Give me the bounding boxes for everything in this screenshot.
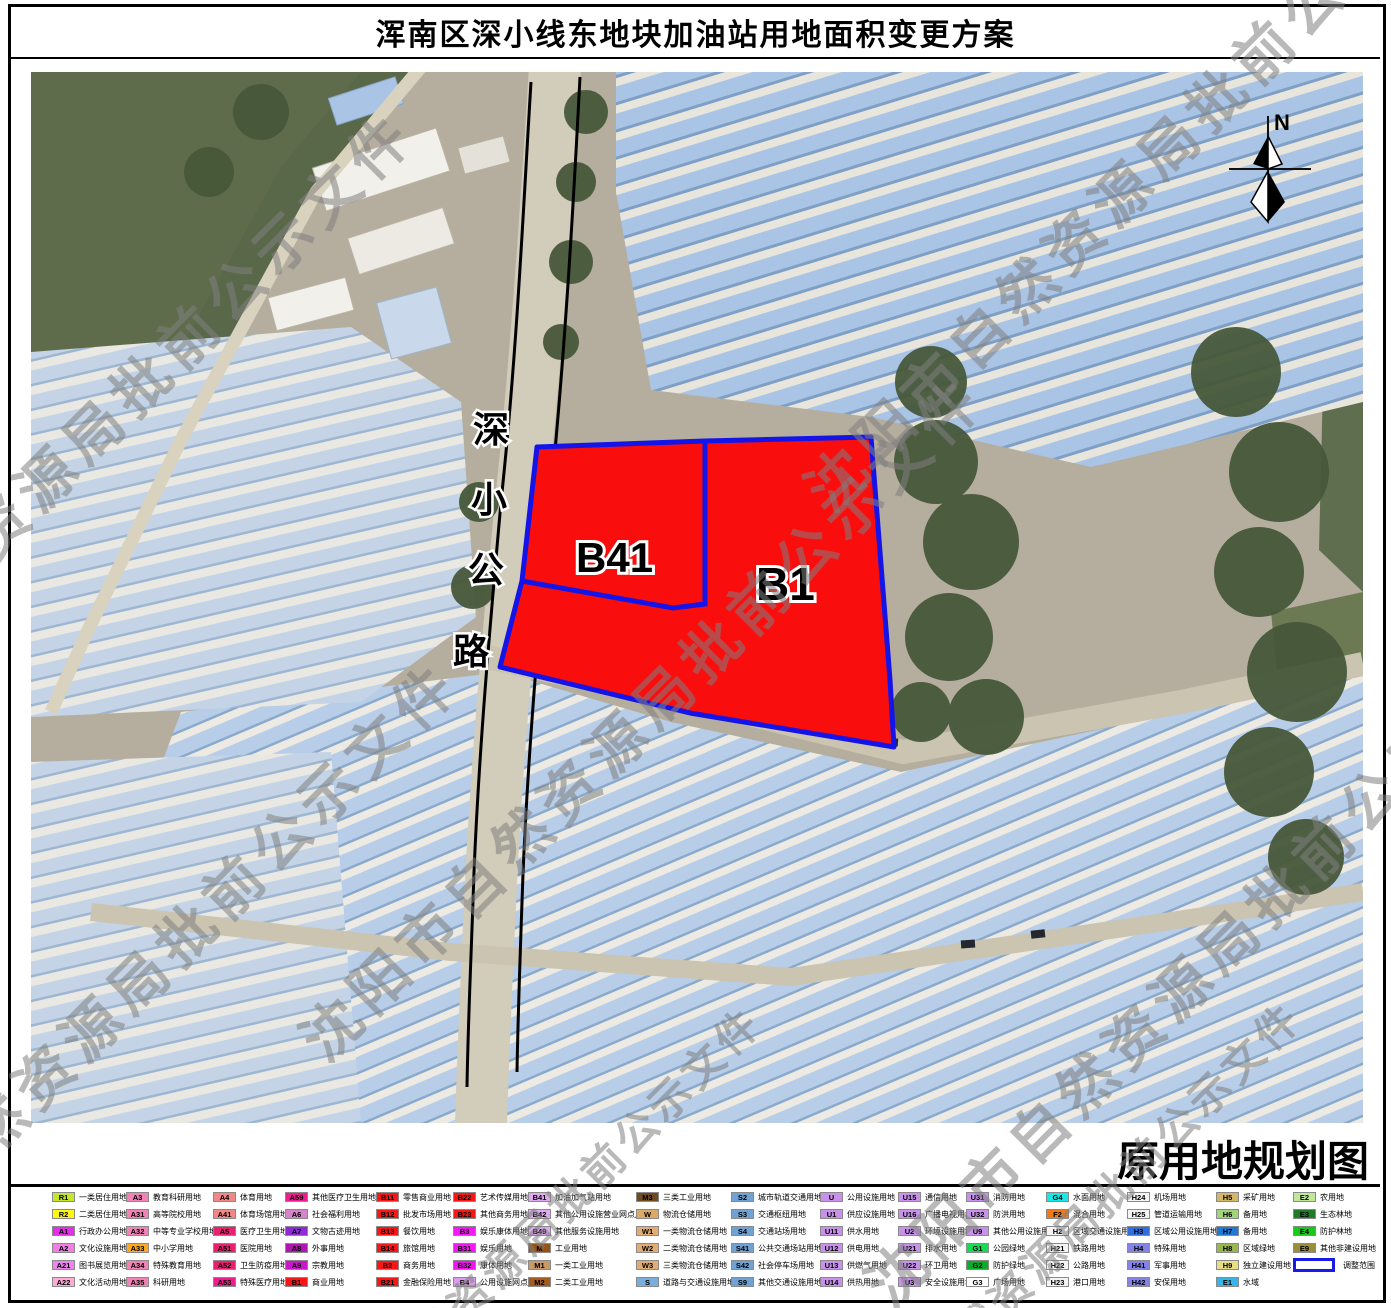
legend-chip-U21: U21 [898, 1243, 921, 1253]
legend-chip-S9: S9 [731, 1277, 754, 1287]
legend-entry-label: 三类工业用地 [663, 1193, 711, 1203]
legend-chip-H24: H24 [1127, 1192, 1150, 1202]
legend-entry-label: 交通站场用地 [758, 1227, 806, 1237]
legend-chip-B14: B14 [376, 1243, 399, 1253]
legend-chip-A3: A3 [126, 1192, 149, 1202]
legend-chip-A34: A34 [126, 1260, 149, 1270]
legend-chip-H7: H7 [1216, 1226, 1239, 1236]
legend-entry-label: 体育用地 [240, 1193, 272, 1203]
legend-chip-U: U [820, 1192, 843, 1202]
legend-entry-label: 批发市场用地 [403, 1210, 451, 1220]
road-char-3: 公 [468, 549, 504, 590]
legend-entry-label: 其他非建设用地 [1320, 1244, 1376, 1254]
legend-entry-label: 铁路用地 [1073, 1244, 1105, 1254]
legend-entry-label: 艺术传媒用地 [480, 1193, 528, 1203]
legend-entry-label: 金融保险用地 [403, 1278, 451, 1288]
legend-entry-label: 特殊教育用地 [153, 1261, 201, 1271]
legend-chip-A51: A51 [213, 1243, 236, 1253]
legend-chip-A4: A4 [213, 1192, 236, 1202]
legend-chip-B42: B42 [528, 1209, 551, 1219]
legend-chip-S4: S4 [731, 1226, 754, 1236]
legend-entry-label: 供燃气用地 [847, 1261, 887, 1271]
legend-entry-label: 防洪用地 [993, 1210, 1025, 1220]
legend-chip-A9: A9 [285, 1260, 308, 1270]
legend-chip-U16: U16 [898, 1209, 921, 1219]
legend-chip-W2: W2 [636, 1243, 659, 1253]
legend-chip-A41: A41 [213, 1209, 236, 1219]
legend-chip-A6: A6 [285, 1209, 308, 1219]
legend-entry-label: 医院用地 [240, 1244, 272, 1254]
legend-entry-label: 图书展览用地 [79, 1261, 127, 1271]
legend-entry-label: 通信用地 [925, 1193, 957, 1203]
legend-chip-B32: B32 [453, 1260, 476, 1270]
legend-chip-M: M [528, 1243, 551, 1253]
legend-entry-label: 公园绿地 [993, 1244, 1025, 1254]
legend-chip-B4: B4 [453, 1277, 476, 1287]
legend-chip-R2: R2 [52, 1209, 75, 1219]
legend-entry-label: 供电用地 [847, 1244, 879, 1254]
legend-entry-label: 宗教用地 [312, 1261, 344, 1271]
legend-chip-S3: S3 [731, 1209, 754, 1219]
legend-entry-label: 卫生防疫用地 [240, 1261, 288, 1271]
planning-document-page: 浑南区深小线东地块加油站用地面积变更方案 [0, 0, 1391, 1308]
legend-chip-W3: W3 [636, 1260, 659, 1270]
legend-chip-A52: A52 [213, 1260, 236, 1270]
legend-chip-H5: H5 [1216, 1192, 1239, 1202]
legend-entry-label: 公路用地 [1073, 1261, 1105, 1271]
legend-chip-U32: U32 [966, 1209, 989, 1219]
legend-entry-label: 防护绿地 [993, 1261, 1025, 1271]
legend-entry-label: 一类物流仓储用地 [663, 1227, 727, 1237]
legend-entry-label: 娱乐用地 [480, 1244, 512, 1254]
legend-entry-label: 其他服务设施用地 [555, 1227, 619, 1237]
legend-entry-label: 消防用地 [993, 1193, 1025, 1203]
legend-chip-R1: R1 [52, 1192, 75, 1202]
legend-entry-label: 独立建设用地 [1243, 1261, 1291, 1271]
legend-chip-A31: A31 [126, 1209, 149, 1219]
legend-entry-label: 公用设施用地 [847, 1193, 895, 1203]
parcel-label-b1: B1 [756, 558, 815, 610]
legend-entry-label: 零售商业用地 [403, 1193, 451, 1203]
legend-chip-H22: H22 [1046, 1260, 1069, 1270]
legend-chip-U1: U1 [820, 1209, 843, 1219]
legend-entry-label: 商业用地 [312, 1278, 344, 1288]
legend-entry-label: 物流仓储用地 [663, 1210, 711, 1220]
legend-chip-G1: G1 [966, 1243, 989, 1253]
legend-chip-S2: S2 [731, 1192, 754, 1202]
legend-chip-A8: A8 [285, 1243, 308, 1253]
legend-chip-U2: U2 [898, 1226, 921, 1236]
legend-entry-label: 备用地 [1243, 1210, 1267, 1220]
legend-entry-label: 交通枢纽用地 [758, 1210, 806, 1220]
legend-chip-B3: B3 [453, 1226, 476, 1236]
legend-entry-label: 教育科研用地 [153, 1193, 201, 1203]
legend-chip-M3: M3 [636, 1192, 659, 1202]
satellite-map: B41 B1 深 小 公 路 N [31, 72, 1363, 1123]
legend-chip-H21: H21 [1046, 1243, 1069, 1253]
legend-entry-label: 其他交通设施用地 [758, 1278, 822, 1288]
legend-chip-G3: G3 [966, 1277, 989, 1287]
legend-entry-label: 科研用地 [153, 1278, 185, 1288]
legend-chip-B12: B12 [376, 1209, 399, 1219]
legend-entry-label: 一类工业用地 [555, 1261, 603, 1271]
legend-entry-label: 外事用地 [312, 1244, 344, 1254]
legend-chip-H8: H8 [1216, 1243, 1239, 1253]
legend-chip-H2: H2 [1046, 1226, 1069, 1236]
legend-entry-label: 工业用地 [555, 1244, 587, 1254]
legend-entry-label: 中小学用地 [153, 1244, 193, 1254]
legend-chip-M1: M1 [528, 1260, 551, 1270]
legend-chip-H9: H9 [1216, 1260, 1239, 1270]
legend-chip-A35: A35 [126, 1277, 149, 1287]
legend-entry-label: 安保用地 [1154, 1278, 1186, 1288]
legend-chip-A21: A21 [52, 1260, 75, 1270]
legend-entry-label: 餐饮用地 [403, 1227, 435, 1237]
legend-entry-label: 商务用地 [403, 1261, 435, 1271]
road-char-4: 路 [453, 631, 490, 672]
legend-entry-label: 其他医疗卫生用地 [312, 1193, 376, 1203]
legend-chip-F2: F2 [1046, 1209, 1069, 1219]
legend-entry-label: 社会停车场用地 [758, 1261, 814, 1271]
legend-entry-label: 其他商务用地 [480, 1210, 528, 1220]
legend-entry-label: 道路与交通设施用地 [663, 1278, 735, 1288]
road-char-1: 深 [473, 409, 509, 450]
legend-entry-label: 排水用地 [925, 1244, 957, 1254]
legend-chip-S41: S41 [731, 1243, 754, 1253]
legend-entry-label: 农用地 [1320, 1193, 1344, 1203]
legend-entry-label: 调整范围 [1343, 1261, 1375, 1271]
legend-entry-label: 采矿用地 [1243, 1193, 1275, 1203]
legend-chip-H4: H4 [1127, 1243, 1150, 1253]
legend-chip-A7: A7 [285, 1226, 308, 1236]
legend-chip-B22: B22 [453, 1192, 476, 1202]
legend-entry-label: 供应设施用地 [847, 1210, 895, 1220]
legend-chip-A59: A59 [285, 1192, 308, 1202]
legend-entry-label: 区域绿地 [1243, 1244, 1275, 1254]
legend-chip-G4: G4 [1046, 1192, 1069, 1202]
legend-entry-label: 混合用地 [1073, 1210, 1105, 1220]
legend-chip-E9: E9 [1293, 1243, 1316, 1253]
legend-chip-H42: H42 [1127, 1277, 1150, 1287]
legend-entry-label: 娱乐康体用地 [480, 1227, 528, 1237]
north-label: N [1274, 110, 1290, 135]
legend-entry-label: 供水用地 [847, 1227, 879, 1237]
legend-chip-E2: E2 [1293, 1192, 1316, 1202]
legend-entry-label: 三类物流仓储用地 [663, 1261, 727, 1271]
legend-chip-H25: H25 [1127, 1209, 1150, 1219]
legend-entry-label: 行政办公用地 [79, 1227, 127, 1237]
legend-entry-label: 防护林地 [1320, 1227, 1352, 1237]
legend-entry-label: 特殊用地 [1154, 1244, 1186, 1254]
legend-chip-B49: B49 [528, 1226, 551, 1236]
legend-entry-label: 医疗卫生用地 [240, 1227, 288, 1237]
legend-chip-A33: A33 [126, 1243, 149, 1253]
legend-entry-label: 文物古迹用地 [312, 1227, 360, 1237]
legend-entry-label: 广场用地 [993, 1278, 1025, 1288]
legend-entry-label: 水域 [1243, 1278, 1259, 1288]
legend-chip-S: S [636, 1277, 659, 1287]
legend-chip-A22: A22 [52, 1277, 75, 1287]
legend-entry-label: 社会福利用地 [312, 1210, 360, 1220]
map-sheet-title: 原用地规划图 [1117, 1128, 1369, 1189]
legend-chip-B23: B23 [453, 1209, 476, 1219]
parcel-label-b41: B41 [576, 534, 653, 581]
legend-chip-E3: E3 [1293, 1209, 1316, 1219]
legend-entry-label: 特殊医疗用地 [240, 1278, 288, 1288]
legend-chip-W1: W1 [636, 1226, 659, 1236]
legend-entry-label: 公共交通场站用地 [758, 1244, 822, 1254]
legend-entry-label: 体育场馆用地 [240, 1210, 288, 1220]
legend-chip-adjust-range [1293, 1258, 1335, 1272]
legend-chip-H3: H3 [1127, 1226, 1150, 1236]
legend-entry-label: 机场用地 [1154, 1193, 1186, 1203]
legend-entry-label: 一类居住用地 [79, 1193, 127, 1203]
legend-chip-A32: A32 [126, 1226, 149, 1236]
legend-entry-label: 文化设施用地 [79, 1244, 127, 1254]
legend-chip-H6: H6 [1216, 1209, 1239, 1219]
legend-chip-B21: B21 [376, 1277, 399, 1287]
legend-chip-B2: B2 [376, 1260, 399, 1270]
legend-chip-B13: B13 [376, 1226, 399, 1236]
legend-entry-label: 生态林地 [1320, 1210, 1352, 1220]
legend-entry-label: 二类物流仓储用地 [663, 1244, 727, 1254]
legend-entry-label: 康体用地 [480, 1261, 512, 1271]
legend-chip-H23: H23 [1046, 1277, 1069, 1287]
legend-entry-label: 环卫用地 [925, 1261, 957, 1271]
road-char-2: 小 [471, 479, 507, 520]
legend-entry-label: 管道运输用地 [1154, 1210, 1202, 1220]
map-area: B41 B1 深 小 公 路 N [31, 72, 1363, 1123]
legend-chip-G2: G2 [966, 1260, 989, 1270]
legend-chip-H41: H41 [1127, 1260, 1150, 1270]
legend-entry-label: 军事用地 [1154, 1261, 1186, 1271]
page-title: 浑南区深小线东地块加油站用地面积变更方案 [376, 10, 1016, 54]
legend-chip-A5: A5 [213, 1226, 236, 1236]
legend-chip-U12: U12 [820, 1243, 843, 1253]
legend-entry-label: 二类居住用地 [79, 1210, 127, 1220]
legend-chip-U31: U31 [966, 1192, 989, 1202]
legend-entry-label: 城市轨道交通用地 [758, 1193, 822, 1203]
legend-chip-U22: U22 [898, 1260, 921, 1270]
legend-chip-U15: U15 [898, 1192, 921, 1202]
legend-chip-E4: E4 [1293, 1226, 1316, 1236]
legend-entry-label: 区域公用设施用地 [1154, 1227, 1218, 1237]
legend-chip-A2: A2 [52, 1243, 75, 1253]
legend-entry-label: 备用地 [1243, 1227, 1267, 1237]
legend-chip-U14: U14 [820, 1277, 843, 1287]
legend-entry-label: 文化活动用地 [79, 1278, 127, 1288]
legend-chip-A1: A1 [52, 1226, 75, 1236]
legend-chip-U9: U9 [966, 1226, 989, 1236]
legend-entry-label: 中等专业学校用地 [153, 1227, 217, 1237]
legend-entry-label: 港口用地 [1073, 1278, 1105, 1288]
legend-entry-label: 高等院校用地 [153, 1210, 201, 1220]
legend-chip-U11: U11 [820, 1226, 843, 1236]
legend-chip-A53: A53 [213, 1277, 236, 1287]
legend-entry-label: 加油加气站用地 [555, 1193, 611, 1203]
legend-chip-B41: B41 [528, 1192, 551, 1202]
legend-entry-label: 二类工业用地 [555, 1278, 603, 1288]
legend-chip-B31: B31 [453, 1243, 476, 1253]
legend-chip-W: W [636, 1209, 659, 1219]
legend-chip-B11: B11 [376, 1192, 399, 1202]
legend-chip-U3: U3 [898, 1277, 921, 1287]
legend-entry-label: 水面用地 [1073, 1193, 1105, 1203]
legend-entry-label: 供热用地 [847, 1278, 879, 1288]
legend-chip-E1: E1 [1216, 1277, 1239, 1287]
legend-chip-M2: M2 [528, 1277, 551, 1287]
legend-entry-label: 旅馆用地 [403, 1244, 435, 1254]
legend-chip-B1: B1 [285, 1277, 308, 1287]
title-bar: 浑南区深小线东地块加油站用地面积变更方案 [11, 7, 1380, 59]
legend-chip-S42: S42 [731, 1260, 754, 1270]
legend-chip-U13: U13 [820, 1260, 843, 1270]
